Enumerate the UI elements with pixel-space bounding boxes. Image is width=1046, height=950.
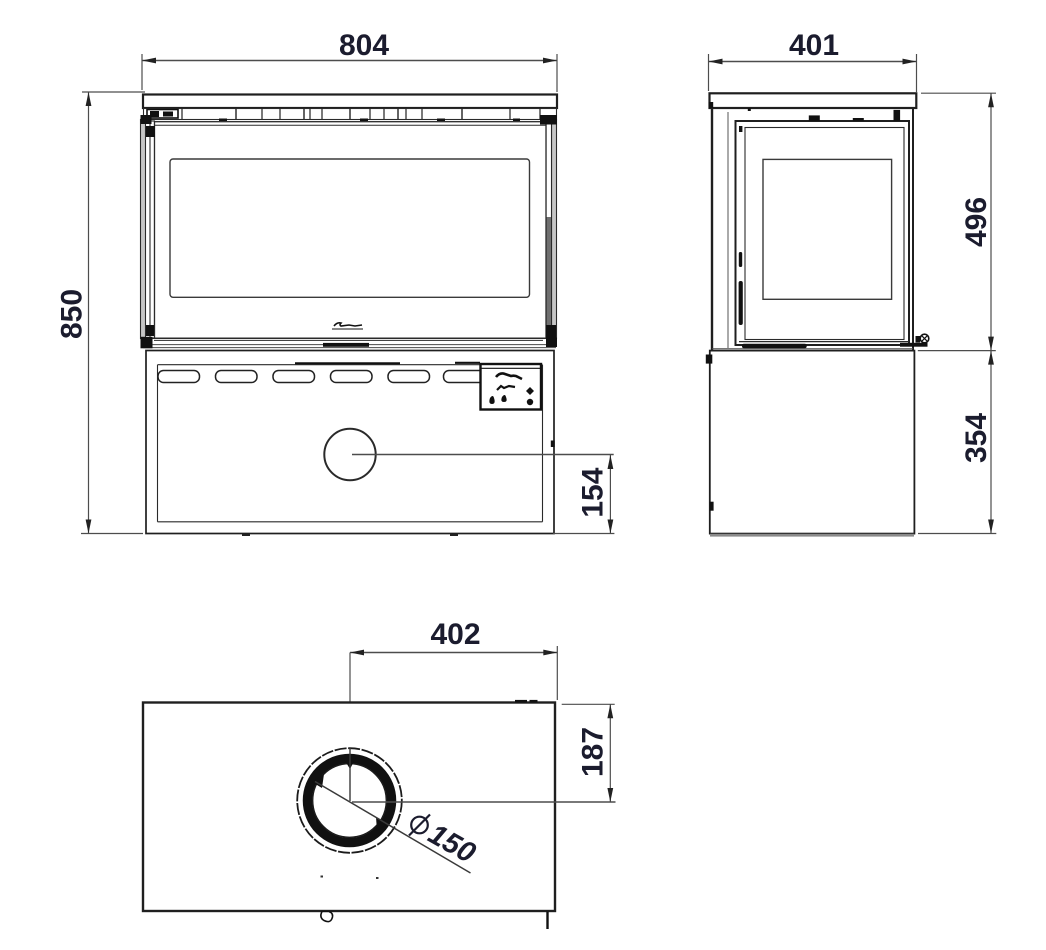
svg-text:354: 354 — [960, 413, 993, 463]
svg-text:401: 401 — [789, 29, 839, 62]
svg-text:154: 154 — [577, 467, 610, 517]
svg-text:804: 804 — [339, 29, 389, 62]
svg-text:187: 187 — [577, 727, 610, 777]
svg-text:402: 402 — [430, 618, 480, 651]
svg-text:496: 496 — [960, 197, 993, 247]
svg-text:850: 850 — [56, 289, 89, 339]
